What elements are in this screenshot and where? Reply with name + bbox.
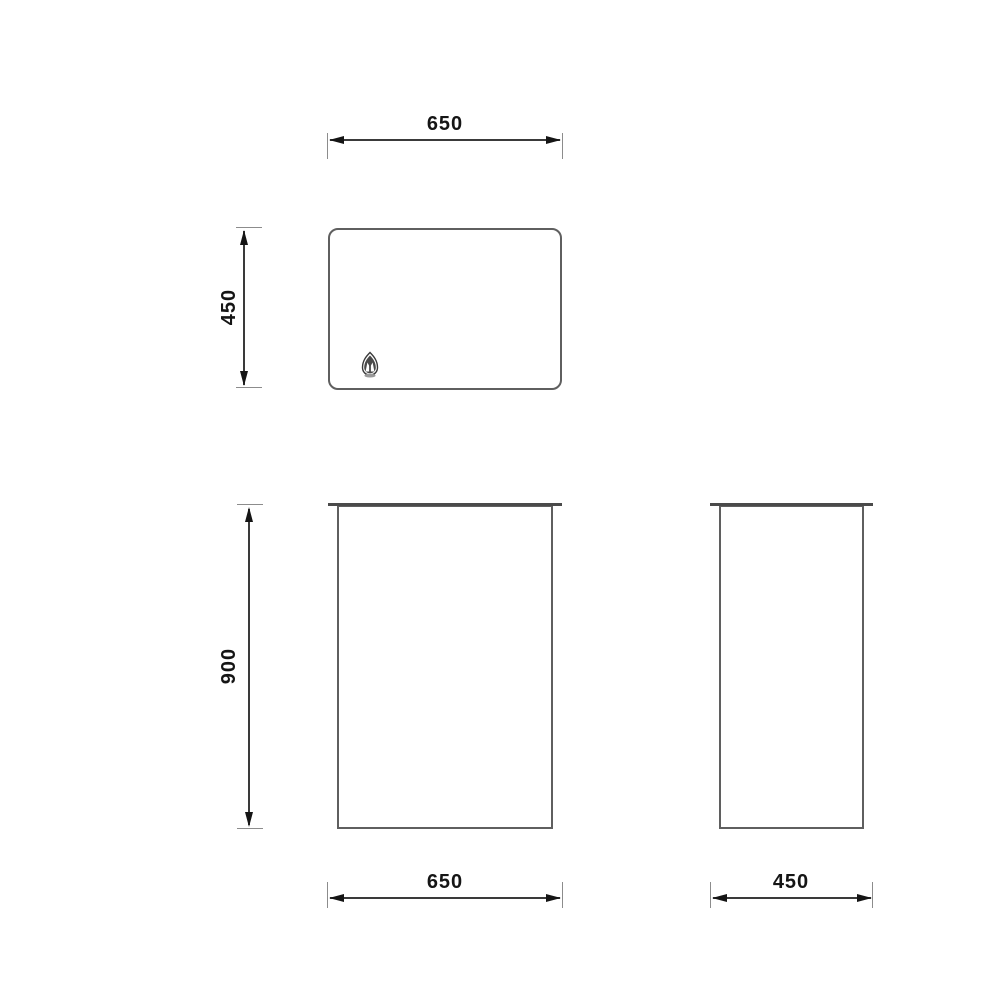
extension-tick [237, 504, 263, 505]
extension-tick [237, 828, 263, 829]
dimension-label: 450 [217, 267, 241, 347]
technical-drawing-canvas: 650 450 900 650 [0, 0, 1000, 1000]
dimension-label: 650 [395, 870, 495, 894]
side-view-top-edge [710, 503, 873, 506]
extension-tick [236, 387, 262, 388]
arrowhead-right-icon [546, 894, 561, 902]
front-view-body-outline [337, 505, 553, 829]
dimension-line [330, 139, 560, 141]
dimension-line [248, 509, 250, 825]
extension-tick [710, 882, 711, 908]
brand-crest-icon [360, 351, 380, 378]
front-view-top-edge [328, 503, 562, 506]
arrowhead-left-icon [329, 136, 344, 144]
arrowhead-right-icon [546, 136, 561, 144]
side-view-body-outline [719, 505, 864, 829]
extension-tick [327, 882, 328, 908]
dimension-line [330, 897, 560, 899]
dimension-line [243, 231, 245, 385]
arrowhead-left-icon [712, 894, 727, 902]
arrowhead-down-icon [245, 812, 253, 827]
arrowhead-right-icon [857, 894, 872, 902]
arrowhead-up-icon [245, 507, 253, 522]
extension-tick [562, 133, 563, 159]
dimension-line [713, 897, 871, 899]
extension-tick [872, 882, 873, 908]
dimension-label: 450 [741, 870, 841, 894]
extension-tick [562, 882, 563, 908]
extension-tick [236, 227, 262, 228]
arrowhead-left-icon [329, 894, 344, 902]
arrowhead-up-icon [240, 230, 248, 245]
dimension-label: 900 [217, 626, 241, 706]
dimension-label: 650 [395, 112, 495, 136]
extension-tick [327, 133, 328, 159]
arrowhead-down-icon [240, 371, 248, 386]
